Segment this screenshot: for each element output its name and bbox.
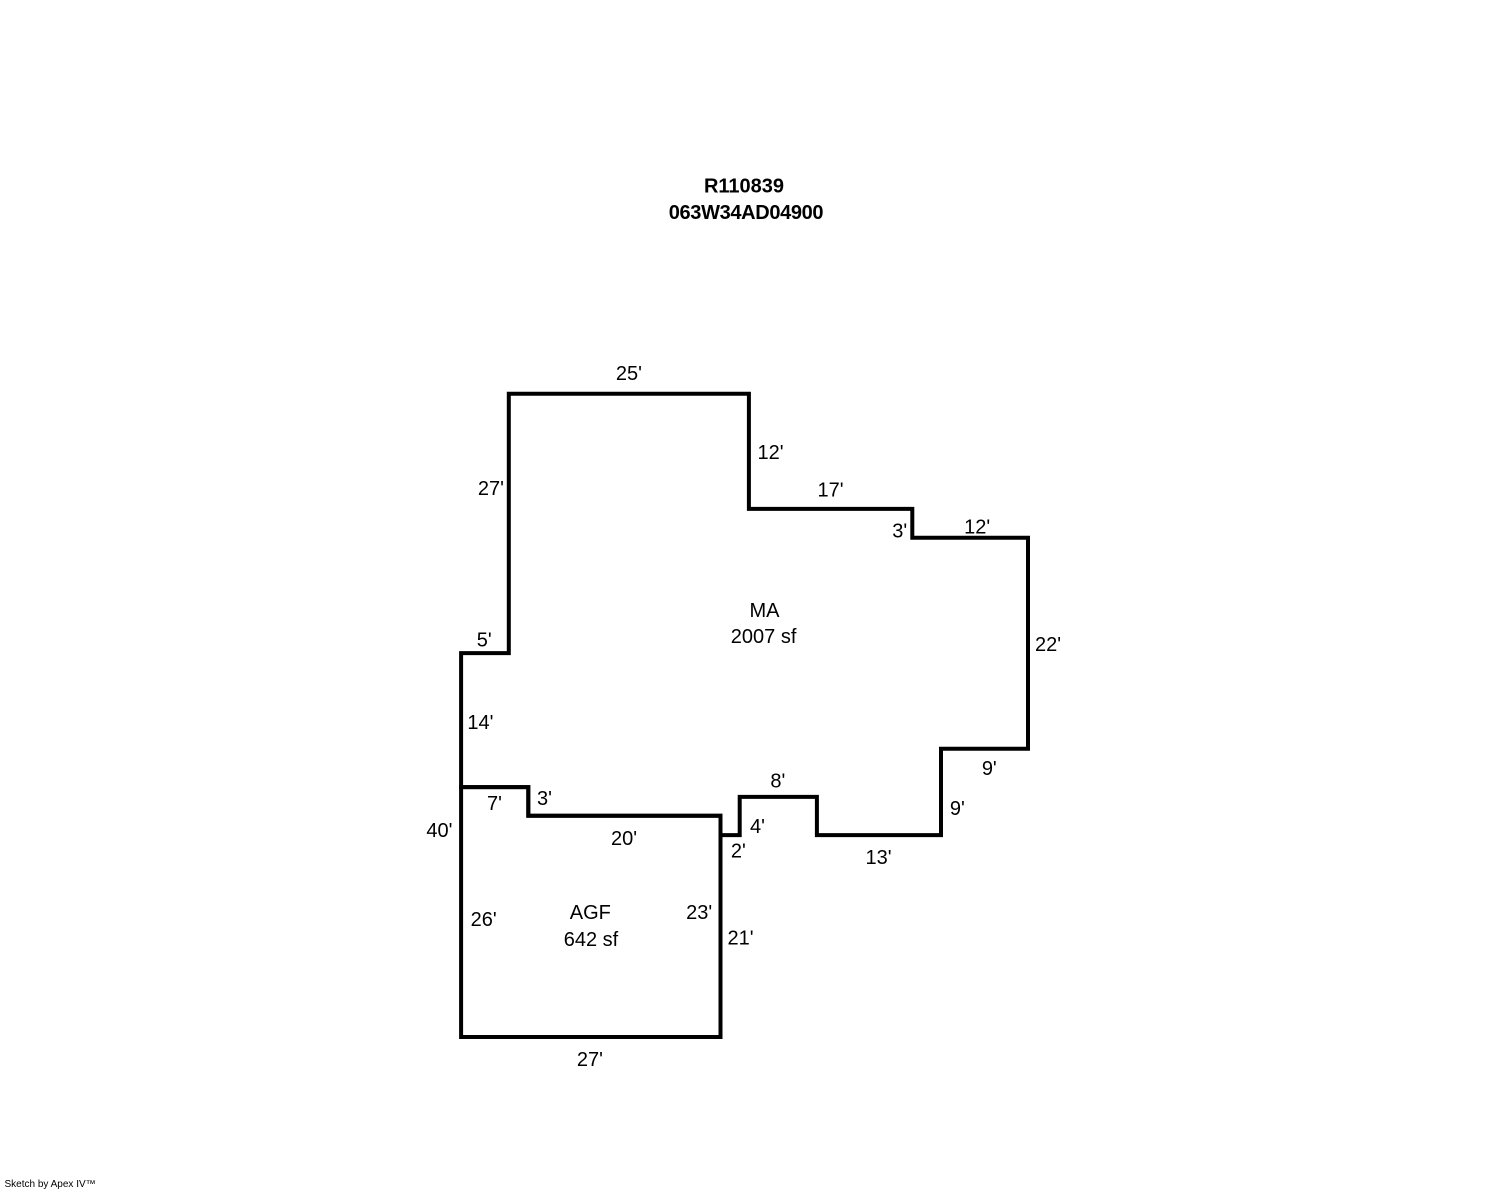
- svg-text:21': 21': [727, 927, 753, 949]
- svg-text:20': 20': [611, 828, 637, 850]
- svg-text:AGF: AGF: [570, 902, 611, 924]
- svg-text:4': 4': [750, 816, 765, 838]
- svg-text:9': 9': [982, 758, 997, 780]
- svg-text:2': 2': [731, 841, 746, 863]
- svg-text:25': 25': [616, 363, 642, 385]
- svg-text:3': 3': [892, 521, 907, 543]
- svg-text:R110839: R110839: [704, 176, 784, 198]
- svg-text:8': 8': [770, 771, 785, 793]
- svg-text:27': 27': [478, 478, 504, 500]
- svg-text:063W34AD04900: 063W34AD04900: [669, 202, 824, 224]
- svg-text:7': 7': [487, 793, 502, 815]
- svg-text:17': 17': [817, 479, 843, 501]
- svg-text:MA: MA: [750, 600, 781, 622]
- svg-text:40': 40': [426, 820, 452, 842]
- svg-text:12': 12': [757, 442, 783, 464]
- svg-text:13': 13': [865, 847, 891, 869]
- svg-text:5': 5': [477, 629, 492, 651]
- svg-text:23': 23': [686, 902, 712, 924]
- svg-text:9': 9': [950, 798, 965, 820]
- svg-text:642 sf: 642 sf: [564, 929, 619, 951]
- svg-text:Sketch by Apex IV™: Sketch by Apex IV™: [5, 1179, 96, 1190]
- svg-text:26': 26': [471, 909, 497, 931]
- svg-text:22': 22': [1035, 634, 1061, 656]
- svg-text:2007 sf: 2007 sf: [731, 626, 797, 648]
- svg-text:12': 12': [964, 517, 990, 539]
- svg-text:14': 14': [467, 712, 493, 734]
- svg-text:3': 3': [537, 788, 552, 810]
- svg-text:27': 27': [577, 1049, 603, 1071]
